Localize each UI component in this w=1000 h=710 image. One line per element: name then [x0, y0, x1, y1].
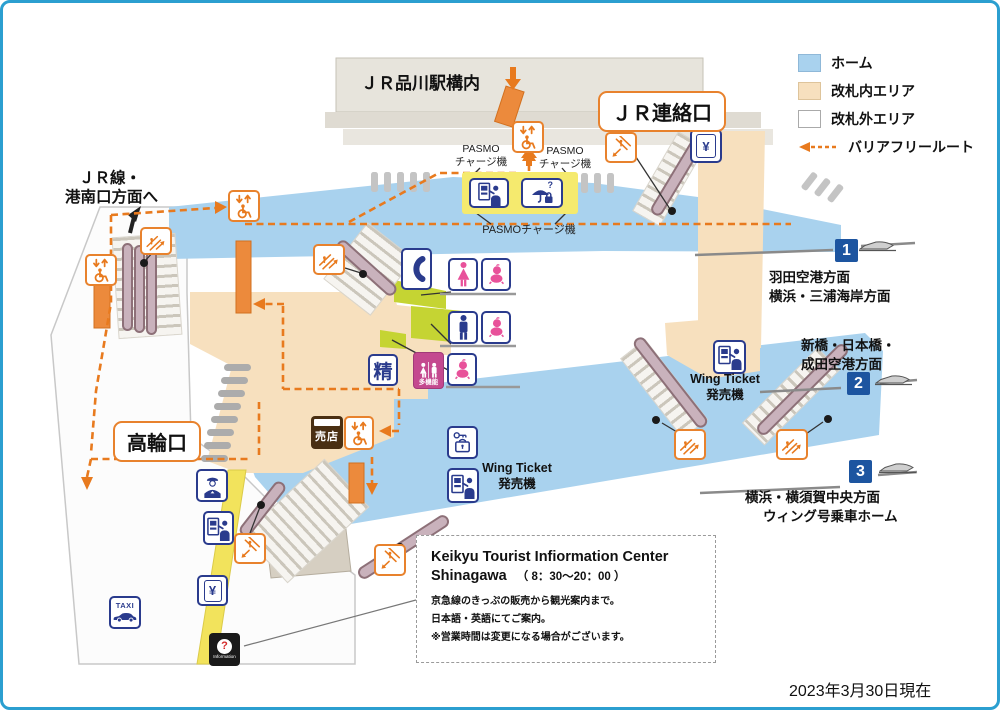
pasmo-charge-label: PASMO チャージ機 [449, 143, 513, 169]
destination-line: 横浜・三浦海岸方面 [769, 288, 891, 307]
escalator-up-icon[interactable] [140, 227, 172, 255]
legend-row-unpaid-area: 改札外エリア [798, 109, 974, 129]
woman-glyph [454, 261, 473, 288]
yen-machine-icon[interactable]: ¥ [197, 575, 228, 606]
tourist-info-center-box: Keikyu Tourist Infiormation Center Shina… [416, 535, 716, 663]
elevator-icon[interactable] [85, 254, 117, 286]
wing-ticket-label: Wing Ticket 発売機 [681, 372, 769, 403]
multi-function-restroom-icon[interactable]: 多機能 [413, 352, 444, 389]
key-locker-glyph [451, 430, 474, 455]
lost-and-found-icon[interactable]: ? [521, 178, 563, 208]
baby-glyph [452, 359, 473, 380]
legend-swatch-paid [798, 82, 821, 100]
legend-label: 改札外エリア [831, 109, 915, 129]
fare-adjustment-label: 精 [373, 357, 392, 384]
konan-direction-label: ＪＲ線・ 港南口方面へ [65, 169, 158, 208]
pasmo-line1: PASMO [449, 143, 513, 156]
legend-row-paid-area: 改札内エリア [798, 81, 974, 101]
konan-line2: 港南口方面へ [65, 188, 158, 207]
platform-2-badge: 2 [847, 372, 870, 395]
info-body-line: 日本語・英語にてご案内。 [431, 611, 701, 629]
escalator-up-glyph [144, 230, 168, 253]
information-label: Information [213, 655, 236, 660]
baby-icon[interactable] [447, 353, 477, 386]
destination-line: 横浜・横須賀中央方面 [745, 489, 898, 508]
destination-line: 新橋・日本橋・ [801, 337, 896, 356]
yen-frame: ¥ [696, 134, 716, 158]
platform-3-badge: 3 [849, 460, 872, 483]
wheelchair-arrows-icon [89, 257, 113, 284]
escalator-up-glyph [317, 248, 341, 272]
escalator-down-icon[interactable] [605, 132, 637, 163]
machine-person-glyph [206, 516, 231, 541]
info-center-subtitle: Shinagawa [431, 568, 507, 584]
yen-machine-icon[interactable]: ¥ [690, 129, 722, 163]
info-center-body: 京急線のきっぷの販売から観光案内まで。 日本語・英語にてご案内。 ※営業時間は変… [431, 593, 701, 647]
information-question-mark: ? [217, 639, 232, 654]
machine-person-glyph [717, 344, 743, 370]
info-center-title: Keikyu Tourist Infiormation Center [431, 548, 701, 567]
legend-label: 改札内エリア [831, 81, 915, 101]
machine-person-glyph [477, 181, 502, 206]
restroom-women-icon[interactable] [448, 258, 478, 291]
station-staff-icon[interactable] [196, 469, 228, 502]
machine-person-glyph [450, 473, 476, 499]
escalator-up-icon[interactable] [674, 429, 706, 460]
yen-label: ¥ [209, 583, 216, 598]
escalator-up-icon[interactable] [313, 244, 345, 275]
car-glyph [112, 611, 138, 623]
yen-frame: ¥ [204, 580, 222, 602]
kiosk-label: 売店 [315, 428, 339, 444]
jr-transfer-gate-label[interactable]: ＪＲ連絡口 [598, 91, 726, 132]
escalator-up-glyph [678, 433, 702, 457]
platform-3-destinations: 横浜・横須賀中央方面 ウィング号乗車ホーム [745, 489, 898, 527]
baby-glyph [486, 264, 507, 285]
ticket-machine-icon[interactable] [469, 178, 509, 208]
platform-2-destinations: 新橋・日本橋・ 成田空港方面 [801, 337, 896, 375]
wing-line2: 発売機 [681, 388, 769, 404]
man-woman-glyph [416, 362, 441, 379]
ticket-machine-icon[interactable] [203, 511, 234, 545]
restroom-men-icon[interactable] [448, 311, 478, 344]
wheelchair-arrows-icon [232, 193, 256, 220]
question-mark-text: ? [221, 641, 228, 652]
escalator-down-glyph [609, 136, 633, 160]
fare-adjustment-icon[interactable]: 精 [368, 354, 398, 386]
legend-swatch-platform [798, 54, 821, 72]
info-center-pointer-line [244, 600, 416, 646]
legend-row-barrier-free: バリアフリールート [798, 137, 974, 157]
escalator-down-icon[interactable] [374, 544, 406, 576]
legend-row-platform: ホーム [798, 53, 974, 73]
konan-line1: ＪＲ線・ [65, 169, 158, 188]
legend: ホーム 改札内エリア 改札外エリア バリアフリールート [798, 53, 974, 157]
kiosk-icon[interactable]: 売店 [311, 416, 343, 449]
dashed-arrow-icon [798, 141, 838, 153]
wing-ticket-label: Wing Ticket 発売機 [475, 461, 559, 492]
phone-icon[interactable] [401, 248, 432, 290]
pasmo-line2: チャージ機 [533, 158, 597, 171]
legend-label: ホーム [831, 53, 873, 73]
destination-line: 羽田空港方面 [769, 269, 891, 288]
jr-station-area-title: ＪＲ品川駅構内 [361, 69, 480, 94]
elevator-icon[interactable] [344, 416, 374, 450]
elevator-icon[interactable] [228, 190, 260, 222]
wing-line2: 発売機 [475, 477, 559, 493]
pasmo-line2: チャージ機 [449, 156, 513, 169]
legend-label: バリアフリールート [848, 137, 974, 157]
destination-line: ウィング号乗車ホーム [745, 508, 898, 527]
lost-and-found-question: ? [548, 181, 554, 190]
wing-ticket-machine-icon[interactable] [713, 340, 746, 374]
legend-swatch-unpaid [798, 110, 821, 128]
escalator-up-icon[interactable] [776, 429, 808, 460]
wing-line1: Wing Ticket [681, 372, 769, 388]
station-map: 多機能 精 売店 ? ¥ ¥ TAXI ? Information ＪＲ品川駅構… [0, 0, 1000, 710]
coin-locker-icon[interactable] [447, 426, 478, 459]
date-note: 2023年3月30日現在 [789, 677, 931, 701]
information-icon[interactable]: ? Information [209, 633, 240, 666]
escalator-down-glyph [238, 537, 262, 561]
pasmo-charge-label: PASMOチャージ機 [471, 224, 587, 238]
multi-function-label: 多機能 [419, 380, 439, 387]
taxi-label: TAXI [116, 602, 135, 610]
info-body-line: 京急線のきっぷの販売から観光案内まで。 [431, 593, 701, 611]
yen-label: ¥ [702, 139, 709, 154]
escalator-down-icon[interactable] [234, 533, 266, 564]
staff-glyph [201, 473, 224, 498]
info-body-line: ※営業時間は変更になる場合がございます。 [431, 629, 701, 647]
taxi-icon[interactable]: TAXI [109, 596, 141, 629]
platform-1-badge: 1 [835, 239, 858, 262]
escalator-up-glyph [780, 433, 804, 457]
pasmo-line1: PASMO [533, 145, 597, 158]
konan-direction-arrow [128, 206, 141, 233]
info-center-subtitle-row: Shinagawa （ 8：30～20：00 ） [431, 567, 701, 586]
platform-1-destinations: 羽田空港方面 横浜・三浦海岸方面 [769, 269, 891, 307]
handset-glyph [406, 254, 428, 284]
baby-icon[interactable] [481, 258, 511, 291]
baby-glyph [486, 317, 507, 338]
man-glyph [454, 314, 473, 341]
pasmo-charge-label: PASMO チャージ機 [533, 145, 597, 171]
takanawa-gate-label[interactable]: 高輪口 [113, 421, 201, 462]
baby-icon[interactable] [481, 311, 511, 344]
kiosk-sign-strip [314, 419, 340, 426]
escalator-down-glyph [378, 548, 402, 572]
wing-line1: Wing Ticket [475, 461, 559, 477]
info-center-hours: （ 8：30～20：00 ） [517, 571, 626, 583]
wheelchair-arrows-icon [348, 420, 371, 447]
